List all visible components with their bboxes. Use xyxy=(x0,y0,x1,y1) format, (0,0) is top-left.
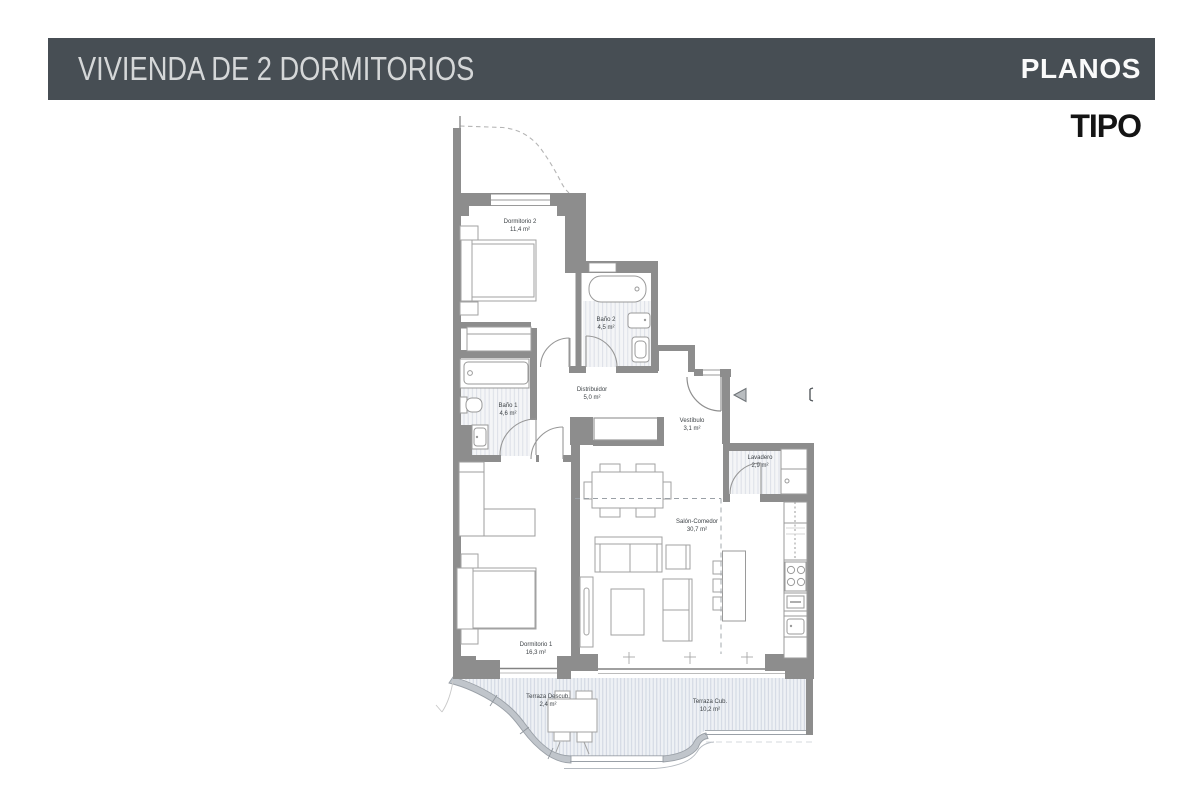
svg-text:Vestíbulo: Vestíbulo xyxy=(680,418,705,424)
svg-text:3,1 m²: 3,1 m² xyxy=(683,426,700,432)
svg-text:30,7 m²: 30,7 m² xyxy=(687,527,707,533)
svg-text:5,0 m²: 5,0 m² xyxy=(583,395,600,401)
svg-text:10,2 m²: 10,2 m² xyxy=(700,707,720,713)
svg-text:11,4 m²: 11,4 m² xyxy=(510,227,530,233)
svg-text:Dormitorio 2: Dormitorio 2 xyxy=(504,219,537,225)
svg-text:4,5 m²: 4,5 m² xyxy=(597,325,614,331)
svg-text:Distribuidor: Distribuidor xyxy=(577,387,607,393)
svg-text:2,4 m²: 2,4 m² xyxy=(539,702,556,708)
svg-text:Baño 1: Baño 1 xyxy=(498,403,518,409)
svg-text:4,6 m²: 4,6 m² xyxy=(499,411,516,417)
svg-text:16,3 m²: 16,3 m² xyxy=(526,650,546,656)
svg-text:Terraza Cub.: Terraza Cub. xyxy=(693,699,728,705)
svg-text:Terraza Descub.: Terraza Descub. xyxy=(526,694,570,700)
svg-text:2,9 m²: 2,9 m² xyxy=(751,463,768,469)
svg-text:Salón-Comedor: Salón-Comedor xyxy=(676,519,718,525)
svg-text:Dormitorio 1: Dormitorio 1 xyxy=(520,642,553,648)
svg-text:Lavadero: Lavadero xyxy=(747,455,773,461)
svg-text:Baño 2: Baño 2 xyxy=(596,317,616,323)
